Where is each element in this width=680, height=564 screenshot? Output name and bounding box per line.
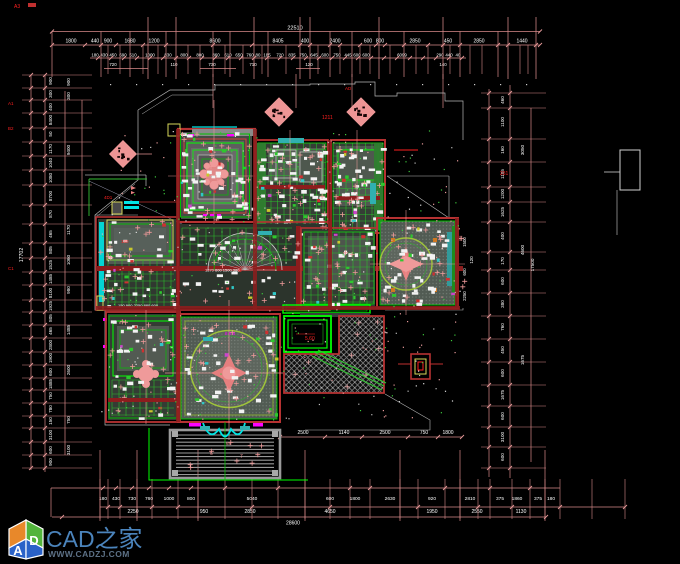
svg-text:2850: 2850	[473, 39, 484, 45]
svg-text:8400: 8400	[48, 114, 53, 125]
svg-text:400: 400	[48, 103, 53, 111]
svg-text:690: 690	[119, 53, 127, 58]
svg-text:D: D	[29, 533, 38, 548]
svg-text:1800: 1800	[442, 430, 453, 436]
svg-text:9400: 9400	[66, 144, 71, 155]
svg-text:870: 870	[48, 210, 53, 218]
svg-text:6: 6	[210, 451, 213, 457]
svg-text:600: 600	[362, 53, 370, 58]
svg-text:68: 68	[226, 441, 232, 446]
svg-text:8600: 8600	[209, 39, 220, 45]
svg-text:4600: 4600	[520, 244, 525, 255]
svg-text:730: 730	[128, 496, 136, 502]
svg-text:600: 600	[48, 446, 53, 454]
svg-text:805: 805	[48, 246, 53, 254]
svg-text:1900: 1900	[48, 352, 53, 363]
svg-text:450: 450	[109, 53, 117, 58]
svg-text:645: 645	[310, 53, 318, 58]
svg-text:720: 720	[276, 53, 284, 58]
svg-text:900: 900	[104, 39, 113, 45]
svg-text:2500: 2500	[297, 430, 308, 436]
svg-text:1440: 1440	[516, 39, 527, 45]
svg-text:730: 730	[208, 62, 216, 67]
svg-text:1525: 1525	[48, 259, 53, 270]
svg-text:600: 600	[500, 369, 505, 377]
svg-text:460: 460	[500, 96, 505, 104]
svg-text:4D1: 4D1	[104, 195, 113, 200]
svg-text:380: 380	[500, 300, 505, 308]
svg-text:800: 800	[180, 53, 188, 58]
svg-text:A1: A1	[8, 101, 14, 106]
svg-text:C1: C1	[8, 266, 14, 271]
svg-text:2500: 2500	[379, 430, 390, 436]
svg-text:400: 400	[500, 232, 505, 240]
svg-text:900: 900	[48, 458, 53, 466]
svg-text:980: 980	[66, 286, 71, 294]
svg-text:3100: 3100	[48, 429, 53, 440]
svg-text:B2: B2	[8, 126, 14, 131]
svg-text:80: 80	[256, 53, 261, 58]
svg-text:760: 760	[246, 53, 254, 58]
svg-text:800: 800	[187, 496, 195, 502]
svg-text:1870 600 1500 380: 1870 600 1500 380	[205, 268, 240, 273]
svg-text:1060: 1060	[66, 254, 71, 265]
svg-text:1040: 1040	[48, 157, 53, 168]
svg-text:A3: A3	[14, 4, 20, 10]
svg-text:300: 300	[66, 92, 71, 100]
svg-text:3100: 3100	[66, 444, 71, 455]
svg-text:2800: 2800	[48, 339, 53, 350]
svg-text:1170: 1170	[66, 225, 71, 235]
svg-text:17500: 17500	[530, 258, 535, 271]
svg-text:120: 120	[469, 256, 474, 264]
svg-text:750: 750	[420, 430, 429, 436]
svg-text:120: 120	[305, 62, 313, 67]
svg-text:750: 750	[48, 392, 53, 400]
svg-text:3050: 3050	[520, 144, 525, 155]
svg-text:180: 180	[91, 53, 99, 58]
svg-text:600: 600	[500, 453, 505, 461]
svg-text:8405: 8405	[272, 39, 283, 45]
svg-text:1211: 1211	[322, 115, 333, 121]
svg-text:710: 710	[249, 62, 257, 67]
svg-text:1170: 1170	[48, 144, 53, 154]
svg-text:1485: 1485	[66, 324, 71, 335]
svg-text:2250: 2250	[462, 291, 467, 301]
svg-text:1925: 1925	[48, 300, 53, 311]
svg-text:170: 170	[500, 257, 505, 265]
svg-text:1800: 1800	[65, 39, 76, 45]
svg-text:440: 440	[445, 53, 453, 58]
svg-text:231: 231	[500, 171, 509, 177]
svg-text:610: 610	[224, 53, 232, 58]
svg-text:445: 445	[344, 53, 352, 58]
svg-text:1080: 1080	[48, 172, 53, 183]
svg-text:3100: 3100	[500, 431, 505, 442]
svg-text:900: 900	[66, 78, 71, 86]
svg-text:1675: 1675	[500, 389, 505, 400]
svg-text:2630: 2630	[385, 496, 396, 502]
svg-text:430: 430	[112, 496, 120, 502]
svg-text:600: 600	[500, 412, 505, 420]
svg-text:720: 720	[109, 62, 117, 67]
svg-text:600: 600	[364, 39, 373, 45]
svg-text:1200: 1200	[148, 39, 159, 45]
svg-text:510: 510	[129, 53, 137, 58]
svg-text:1885: 1885	[48, 378, 53, 389]
svg-text:110: 110	[171, 62, 179, 67]
svg-text:180: 180	[547, 496, 555, 502]
svg-text:450: 450	[500, 346, 505, 354]
svg-text:1800: 1800	[350, 496, 361, 502]
svg-text:8100: 8100	[48, 287, 53, 298]
svg-text:1000: 1000	[164, 496, 175, 502]
svg-text:900: 900	[48, 77, 53, 85]
svg-text:150: 150	[48, 417, 53, 425]
svg-text:375: 375	[534, 496, 542, 502]
svg-text:400: 400	[301, 39, 310, 45]
svg-text:375: 375	[496, 496, 504, 502]
svg-text:5.60: 5.60	[305, 336, 315, 342]
svg-text:8700: 8700	[48, 190, 53, 201]
svg-text:1860: 1860	[512, 496, 523, 502]
svg-text:835: 835	[288, 53, 296, 58]
svg-text:2850: 2850	[244, 509, 255, 515]
svg-text:7: 7	[240, 454, 243, 460]
svg-text:180: 180	[121, 239, 129, 244]
svg-text:440: 440	[91, 39, 100, 45]
svg-text:185: 185	[263, 53, 271, 58]
svg-text:50: 50	[48, 131, 53, 137]
svg-text:600: 600	[48, 368, 53, 376]
svg-text:28600: 28600	[286, 521, 300, 527]
svg-text:2550: 2550	[471, 509, 482, 515]
svg-text:160: 160	[500, 146, 505, 154]
svg-text:780: 780	[48, 405, 53, 413]
svg-text:600: 600	[321, 53, 329, 58]
svg-text:17702: 17702	[19, 248, 25, 263]
svg-text:805: 805	[48, 314, 53, 322]
svg-text:1140: 1140	[339, 430, 350, 436]
svg-text:920: 920	[428, 496, 436, 502]
svg-text:750: 750	[66, 416, 71, 424]
svg-text:2600: 2600	[66, 364, 71, 375]
svg-text:1485: 1485	[48, 273, 53, 284]
svg-text:A: A	[13, 543, 23, 558]
svg-text:2810: 2810	[465, 496, 476, 502]
svg-text:8 8 8: 8 8 8	[225, 331, 236, 336]
svg-text:1200: 1200	[500, 188, 505, 199]
svg-text:830: 830	[164, 53, 172, 58]
svg-text:1130: 1130	[516, 509, 527, 515]
svg-text:1000: 1000	[145, 53, 155, 58]
svg-text:465: 465	[48, 230, 53, 238]
svg-text:750: 750	[299, 53, 307, 58]
svg-text:950: 950	[200, 509, 209, 515]
svg-text:430: 430	[100, 53, 108, 58]
svg-text:AD: AD	[345, 86, 352, 91]
svg-text:600: 600	[500, 277, 505, 285]
svg-text:2850: 2850	[409, 39, 420, 45]
svg-text:WWW.CADZJ.COM: WWW.CADZJ.COM	[48, 549, 130, 559]
svg-text:1625: 1625	[500, 206, 505, 217]
svg-text:1100: 1100	[500, 117, 505, 127]
svg-text:465: 465	[48, 327, 53, 335]
svg-text:1675: 1675	[520, 354, 525, 365]
svg-text:300: 300	[48, 90, 53, 98]
svg-text:600: 600	[462, 268, 467, 276]
svg-text:450: 450	[444, 39, 453, 45]
svg-text:1950: 1950	[426, 509, 437, 515]
svg-text:760: 760	[500, 323, 505, 331]
